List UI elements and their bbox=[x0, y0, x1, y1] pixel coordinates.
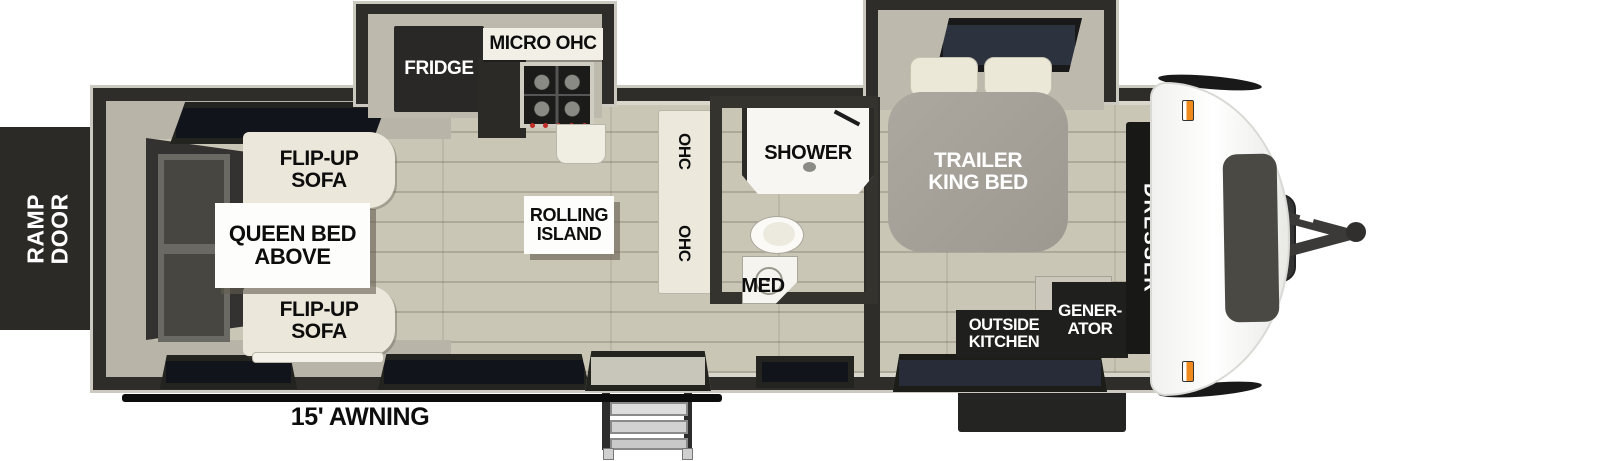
ohc-cabinet-1: OHC bbox=[658, 116, 710, 186]
queen-bed-above-box: QUEEN BED ABOVE bbox=[215, 203, 370, 288]
floorplan-canvas: 15' AWNING RAMP DOOR FLIP-UP SOFA FLIP-U… bbox=[0, 0, 1600, 461]
toilet-icon bbox=[750, 216, 804, 254]
kitchen-sink-counter bbox=[556, 124, 606, 164]
outside-kitchen-label: OUTSIDE KITCHEN bbox=[969, 317, 1040, 351]
king-bed: TRAILER KING BED bbox=[888, 92, 1068, 252]
bathroom-bottom-window bbox=[756, 356, 854, 388]
micro-ohc-label: MICRO OHC bbox=[489, 34, 596, 54]
ramp-door-label: RAMP DOOR bbox=[25, 193, 73, 264]
shower-head-icon bbox=[834, 110, 861, 127]
generator-label: GENER- ATOR bbox=[1058, 302, 1122, 337]
generator-box: GENER- ATOR bbox=[1052, 282, 1128, 358]
awning-label: 15' AWNING bbox=[240, 404, 480, 430]
fridge-label: FRIDGE bbox=[404, 59, 473, 79]
ramp-door: RAMP DOOR bbox=[0, 127, 97, 330]
step-foot bbox=[682, 448, 693, 460]
pillow bbox=[910, 57, 978, 97]
marker-light-icon bbox=[1182, 361, 1194, 382]
stove-icon bbox=[520, 62, 594, 128]
bedroom-bottom-window bbox=[893, 354, 1107, 392]
hitch-coupler bbox=[1346, 222, 1366, 242]
bathroom: SHOWER MED bbox=[710, 96, 878, 304]
microwave-ohc-banner: MICRO OHC bbox=[483, 28, 603, 60]
flip-up-sofa-bottom: FLIP-UP SOFA bbox=[243, 286, 395, 356]
kitchen-cabinet bbox=[478, 58, 526, 138]
rolling-island-label: ROLLING ISLAND bbox=[530, 206, 608, 243]
toilet-seat bbox=[763, 222, 795, 246]
step-foot bbox=[603, 448, 614, 460]
outside-kitchen-box: OUTSIDE KITCHEN bbox=[956, 310, 1052, 358]
flip-up-sofa-top-label: FLIP-UP SOFA bbox=[280, 148, 359, 192]
ohc-label-2: OHC bbox=[675, 225, 693, 262]
rolling-island-box: ROLLING ISLAND bbox=[524, 196, 614, 254]
step-tread bbox=[610, 438, 688, 450]
entry-door bbox=[585, 351, 711, 391]
med-label: MED bbox=[728, 276, 798, 297]
marker-light-icon bbox=[1182, 100, 1194, 121]
shower-label-wrap: SHOWER bbox=[747, 138, 869, 168]
awning-line bbox=[122, 394, 722, 402]
fridge: FRIDGE bbox=[394, 26, 484, 112]
flip-up-sofa-top: FLIP-UP SOFA bbox=[243, 132, 395, 208]
pillow bbox=[984, 57, 1052, 97]
king-bed-label: TRAILER KING BED bbox=[928, 150, 1027, 194]
front-cap-window bbox=[1223, 154, 1280, 323]
step-tread bbox=[610, 402, 688, 416]
queen-bed-above-label: QUEEN BED ABOVE bbox=[229, 223, 356, 269]
step-tread bbox=[610, 420, 688, 434]
flip-up-sofa-bottom-label: FLIP-UP SOFA bbox=[280, 299, 359, 343]
shower: SHOWER bbox=[742, 108, 874, 194]
shower-label: SHOWER bbox=[764, 143, 852, 164]
ohc-cabinet-2: OHC bbox=[658, 198, 710, 288]
kitchen-bottom-window bbox=[378, 354, 590, 390]
storage-compartment bbox=[958, 388, 1126, 432]
sofa-base-strip bbox=[252, 352, 384, 363]
ohc-label-1: OHC bbox=[675, 133, 693, 170]
